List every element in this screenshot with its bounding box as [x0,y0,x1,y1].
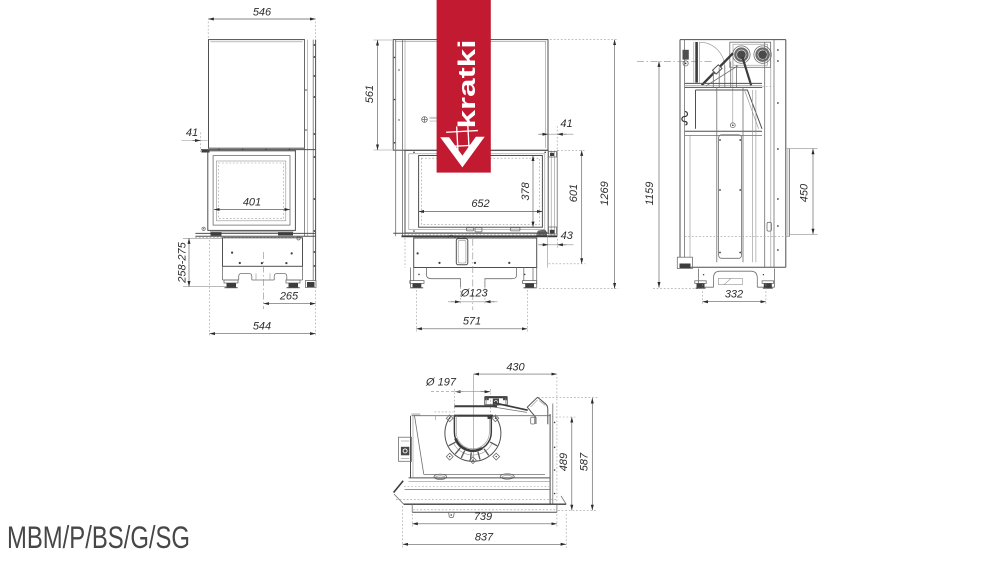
svg-text:571: 571 [463,316,481,328]
svg-text:265: 265 [279,291,299,303]
svg-text:Ø 197: Ø 197 [425,377,457,389]
svg-text:739: 739 [474,511,492,523]
svg-text:258-275: 258-275 [177,241,189,283]
svg-text:41: 41 [186,127,198,139]
svg-text:MBM/P/BS/G/SG: MBM/P/BS/G/SG [7,519,190,555]
svg-text:41: 41 [560,118,572,130]
svg-text:43: 43 [561,230,574,242]
svg-text:kratki: kratki [454,40,481,129]
svg-text:1159: 1159 [644,182,656,206]
svg-text:837: 837 [475,531,494,543]
svg-text:Ø123: Ø123 [460,287,489,299]
svg-text:489: 489 [558,453,570,471]
svg-text:546: 546 [253,7,272,19]
svg-text:587: 587 [578,452,590,471]
svg-text:601: 601 [568,184,580,202]
svg-text:430: 430 [506,361,525,373]
svg-text:450: 450 [799,183,811,202]
svg-text:401: 401 [243,197,261,209]
svg-text:561: 561 [364,85,376,103]
svg-text:332: 332 [725,289,743,301]
svg-text:652: 652 [471,198,489,210]
svg-text:378: 378 [520,181,532,200]
svg-text:1269: 1269 [599,181,611,205]
svg-text:544: 544 [253,321,271,333]
